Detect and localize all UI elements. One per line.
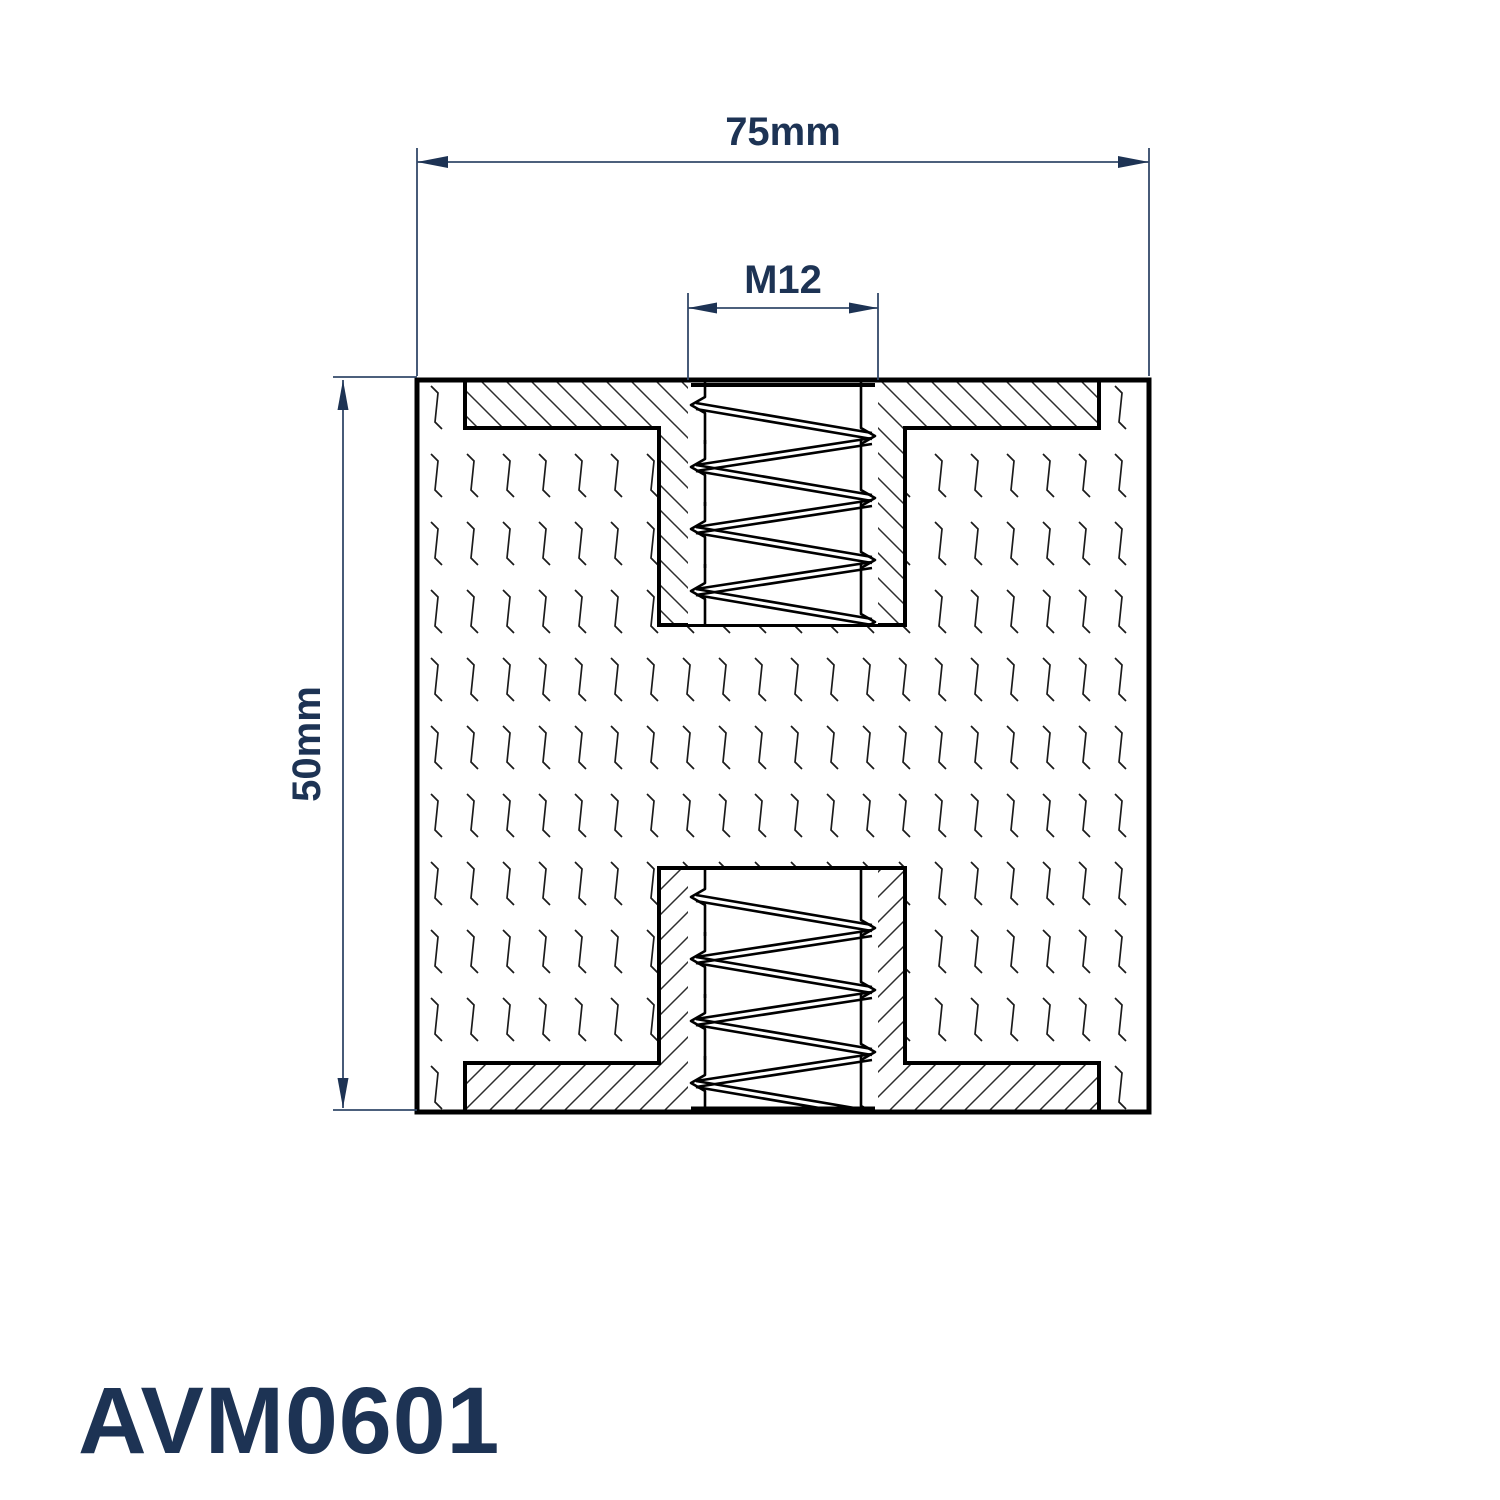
thread-dimension-label: M12 xyxy=(744,258,822,302)
height-dimension xyxy=(333,377,417,1110)
drawing-canvas: 75mm M12 50mm AVM0601 xyxy=(0,0,1500,1500)
height-dimension-label: 50mm xyxy=(285,686,329,802)
part-number-label: AVM0601 xyxy=(78,1368,500,1474)
bottom-threaded-hole xyxy=(688,870,878,1149)
width-dimension-label: 75mm xyxy=(725,110,841,154)
top-threaded-hole xyxy=(688,378,878,657)
technical-drawing-page: 75mm M12 50mm AVM0601 xyxy=(0,0,1500,1500)
